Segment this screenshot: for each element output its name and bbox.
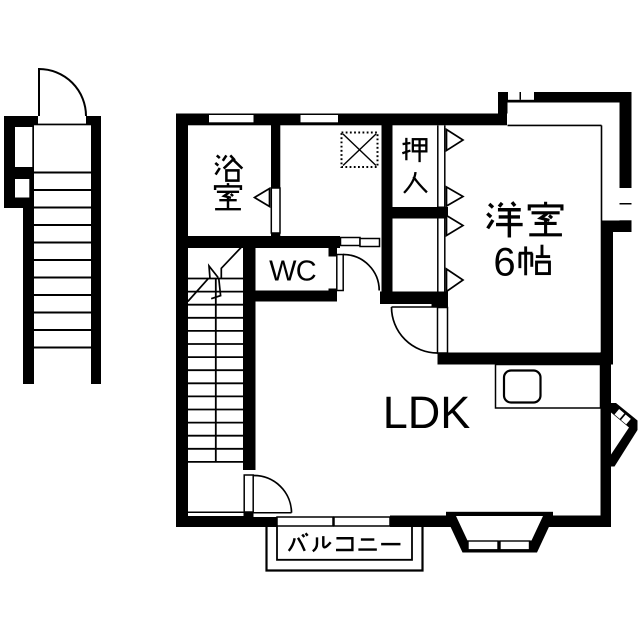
svg-text:LDK: LDK xyxy=(383,387,471,438)
svg-text:6: 6 xyxy=(493,240,515,284)
svg-text:WC: WC xyxy=(269,256,316,288)
